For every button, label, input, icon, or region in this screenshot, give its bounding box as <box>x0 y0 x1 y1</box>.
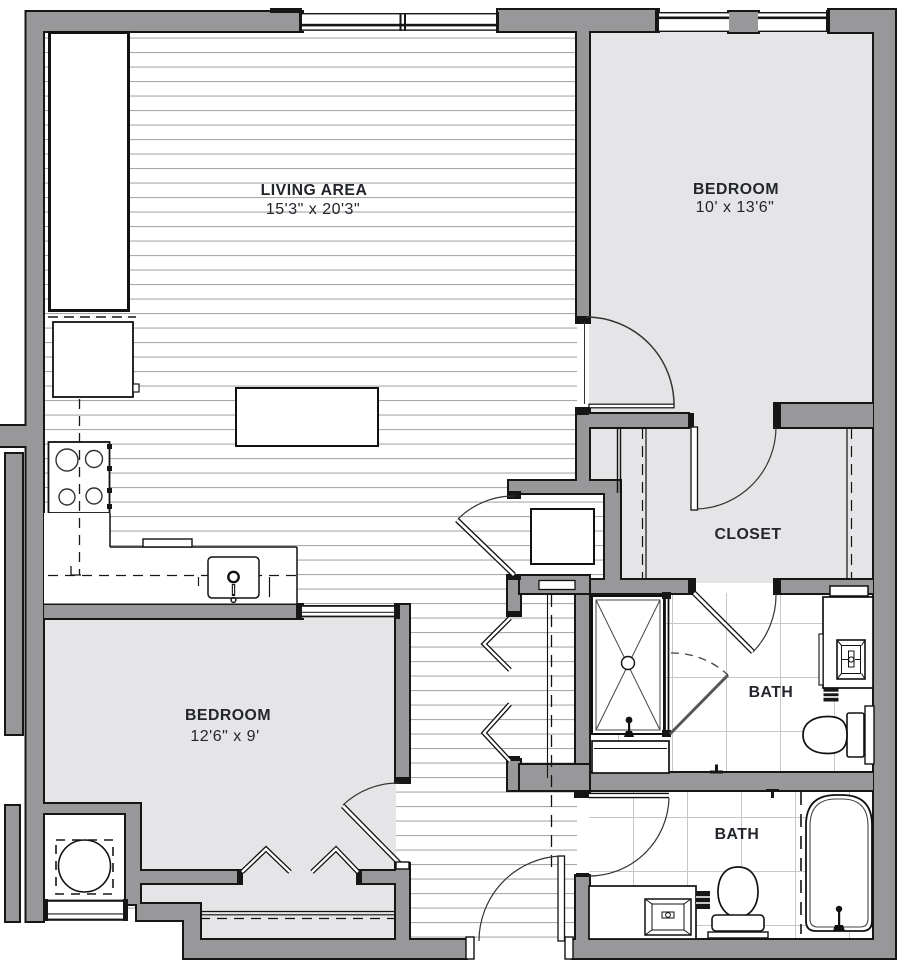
svg-text:15'3" x 20'3": 15'3" x 20'3" <box>266 201 360 218</box>
svg-text:BEDROOM: BEDROOM <box>693 181 779 198</box>
svg-text:BATH: BATH <box>715 826 760 843</box>
svg-text:10' x 13'6": 10' x 13'6" <box>696 199 775 216</box>
svg-text:LIVING AREA: LIVING AREA <box>261 182 368 199</box>
svg-text:CLOSET: CLOSET <box>714 526 781 543</box>
svg-text:BEDROOM: BEDROOM <box>185 707 271 724</box>
svg-text:12'6" x 9': 12'6" x 9' <box>190 728 259 745</box>
svg-text:BATH: BATH <box>749 684 794 701</box>
